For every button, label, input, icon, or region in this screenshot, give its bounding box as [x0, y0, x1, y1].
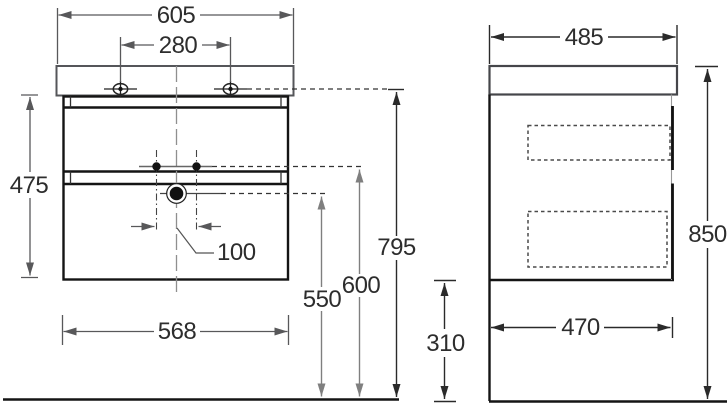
top-width-label: 605 [157, 2, 196, 29]
cabinet-width-label: 568 [158, 318, 197, 345]
technical-drawing: 605 280 475 100 [0, 0, 728, 406]
side-cabinet-body [489, 95, 674, 402]
front-view: 605 280 475 100 [3, 2, 416, 400]
side-worktop [490, 66, 678, 95]
worktop-height-label: 795 [377, 234, 416, 261]
front-worktop [57, 66, 294, 96]
faucet-spacing-label: 280 [159, 32, 198, 59]
drain-height-label: 550 [303, 286, 342, 313]
fixing-height-label: 600 [342, 272, 381, 299]
drawing-canvas: 605 280 475 100 [0, 0, 728, 406]
fixing-spacing-label: 100 [217, 239, 256, 266]
cabinet-height-label: 475 [10, 172, 49, 199]
floor-clearance-label: 310 [426, 330, 465, 357]
top-depth-label: 485 [565, 24, 604, 51]
drawer-hidden-outlines [528, 126, 670, 268]
side-view: 485 470 850 [426, 24, 727, 402]
cabinet-depth-label: 470 [561, 314, 600, 341]
overall-height-label: 850 [688, 221, 727, 248]
